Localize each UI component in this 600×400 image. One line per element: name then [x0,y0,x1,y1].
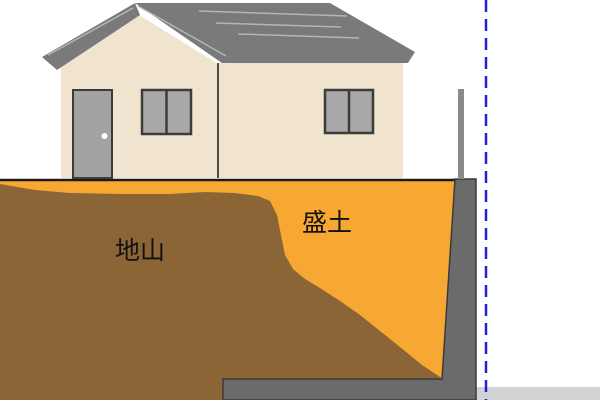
fill-soil-label: 盛土 [302,208,352,237]
natural-ground-label: 地山 [115,236,165,265]
door-knob-icon [102,133,108,139]
house-side-wall [218,63,403,178]
boundary-fence [458,89,464,179]
house-illustration [42,3,415,178]
diagram-canvas: 地山 盛土 [0,0,600,400]
lower-ground-strip [470,387,600,400]
soil-cross-section-diagram: 地山 盛土 [0,0,600,400]
